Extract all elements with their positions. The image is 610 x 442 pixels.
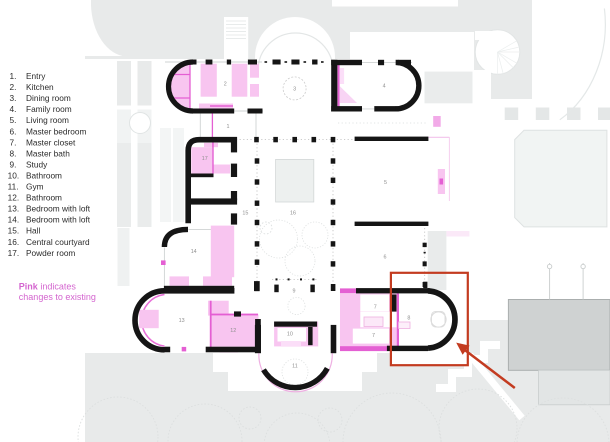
svg-text:9.: 9.	[10, 159, 17, 169]
svg-text:15.: 15.	[8, 226, 20, 236]
svg-text:6: 6	[384, 255, 387, 261]
svg-text:changes to existing: changes to existing	[19, 292, 96, 302]
svg-text:Living room: Living room	[26, 115, 69, 125]
svg-text:Master bedroom: Master bedroom	[26, 126, 86, 136]
svg-text:15: 15	[242, 210, 248, 216]
svg-text:9: 9	[293, 288, 296, 294]
svg-text:10.: 10.	[8, 171, 20, 181]
svg-text:17.: 17.	[8, 248, 20, 258]
svg-text:7.: 7.	[10, 137, 17, 147]
svg-text:12.: 12.	[8, 193, 20, 203]
svg-text:10: 10	[287, 332, 293, 338]
svg-text:3: 3	[293, 86, 296, 92]
svg-text:16.: 16.	[8, 237, 20, 247]
svg-text:2: 2	[224, 82, 227, 88]
svg-text:7: 7	[372, 333, 375, 339]
svg-text:11: 11	[292, 363, 298, 369]
svg-text:13.: 13.	[8, 204, 20, 214]
svg-text:8.: 8.	[10, 148, 17, 158]
svg-text:16: 16	[290, 211, 296, 217]
svg-text:1: 1	[227, 124, 230, 130]
svg-text:Central courtyard: Central courtyard	[26, 237, 90, 247]
svg-text:Bathroom: Bathroom	[26, 171, 62, 181]
svg-text:Gym: Gym	[26, 182, 44, 192]
svg-text:Family room: Family room	[26, 104, 72, 114]
svg-text:Entry: Entry	[26, 71, 46, 81]
svg-text:Master closet: Master closet	[26, 137, 76, 147]
svg-text:Pink indicates: Pink indicates	[19, 281, 77, 291]
svg-text:2.: 2.	[10, 82, 17, 92]
svg-text:Study: Study	[26, 159, 48, 169]
svg-text:5.: 5.	[10, 115, 17, 125]
svg-text:17: 17	[202, 156, 208, 162]
svg-text:Bedroom with loft: Bedroom with loft	[26, 215, 91, 225]
svg-text:Hall: Hall	[26, 226, 40, 236]
svg-text:Master bath: Master bath	[26, 148, 70, 158]
svg-text:7: 7	[374, 305, 377, 311]
svg-text:14.: 14.	[8, 215, 20, 225]
svg-text:8: 8	[407, 315, 410, 321]
svg-text:Kitchen: Kitchen	[26, 82, 54, 92]
svg-text:3.: 3.	[10, 93, 17, 103]
svg-text:12: 12	[230, 328, 236, 334]
svg-text:Dining room: Dining room	[26, 93, 71, 103]
svg-text:Bathroom: Bathroom	[26, 193, 62, 203]
svg-text:11.: 11.	[8, 182, 19, 192]
svg-text:13: 13	[179, 318, 185, 324]
svg-text:Bedroom with loft: Bedroom with loft	[26, 204, 91, 214]
svg-text:14: 14	[191, 249, 197, 255]
svg-text:4: 4	[383, 84, 386, 90]
svg-text:Powder room: Powder room	[26, 248, 75, 258]
svg-text:1.: 1.	[10, 71, 17, 81]
svg-text:4.: 4.	[10, 104, 17, 114]
svg-text:5: 5	[384, 180, 387, 186]
svg-text:6.: 6.	[10, 126, 17, 136]
